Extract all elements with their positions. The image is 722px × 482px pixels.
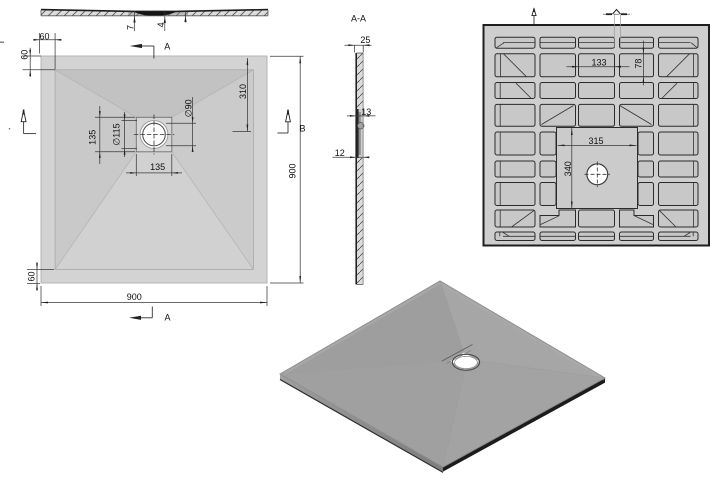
svg-text:900: 900 <box>287 163 297 178</box>
svg-text:13: 13 <box>361 107 371 117</box>
svg-text:315: 315 <box>588 136 603 146</box>
svg-text:A: A <box>164 313 170 323</box>
svg-text:133: 133 <box>591 57 606 67</box>
svg-text:A: A <box>164 41 170 51</box>
svg-text:60: 60 <box>20 50 30 60</box>
svg-text:12: 12 <box>335 148 345 158</box>
svg-text:60: 60 <box>39 31 49 41</box>
svg-text:∅115: ∅115 <box>111 123 121 145</box>
svg-text:∅90: ∅90 <box>184 99 194 117</box>
svg-text:60: 60 <box>27 271 37 281</box>
svg-text:4: 4 <box>156 22 166 27</box>
svg-text:B: B <box>299 124 305 134</box>
svg-text:135: 135 <box>150 162 165 172</box>
svg-text:A-A: A-A <box>351 14 366 24</box>
svg-text:310: 310 <box>238 84 248 99</box>
svg-text:78: 78 <box>634 59 644 69</box>
svg-text:900: 900 <box>127 292 142 302</box>
svg-text:135: 135 <box>87 130 97 145</box>
svg-text:25: 25 <box>360 35 370 45</box>
svg-text:340: 340 <box>563 161 573 176</box>
svg-text:7: 7 <box>126 25 136 30</box>
